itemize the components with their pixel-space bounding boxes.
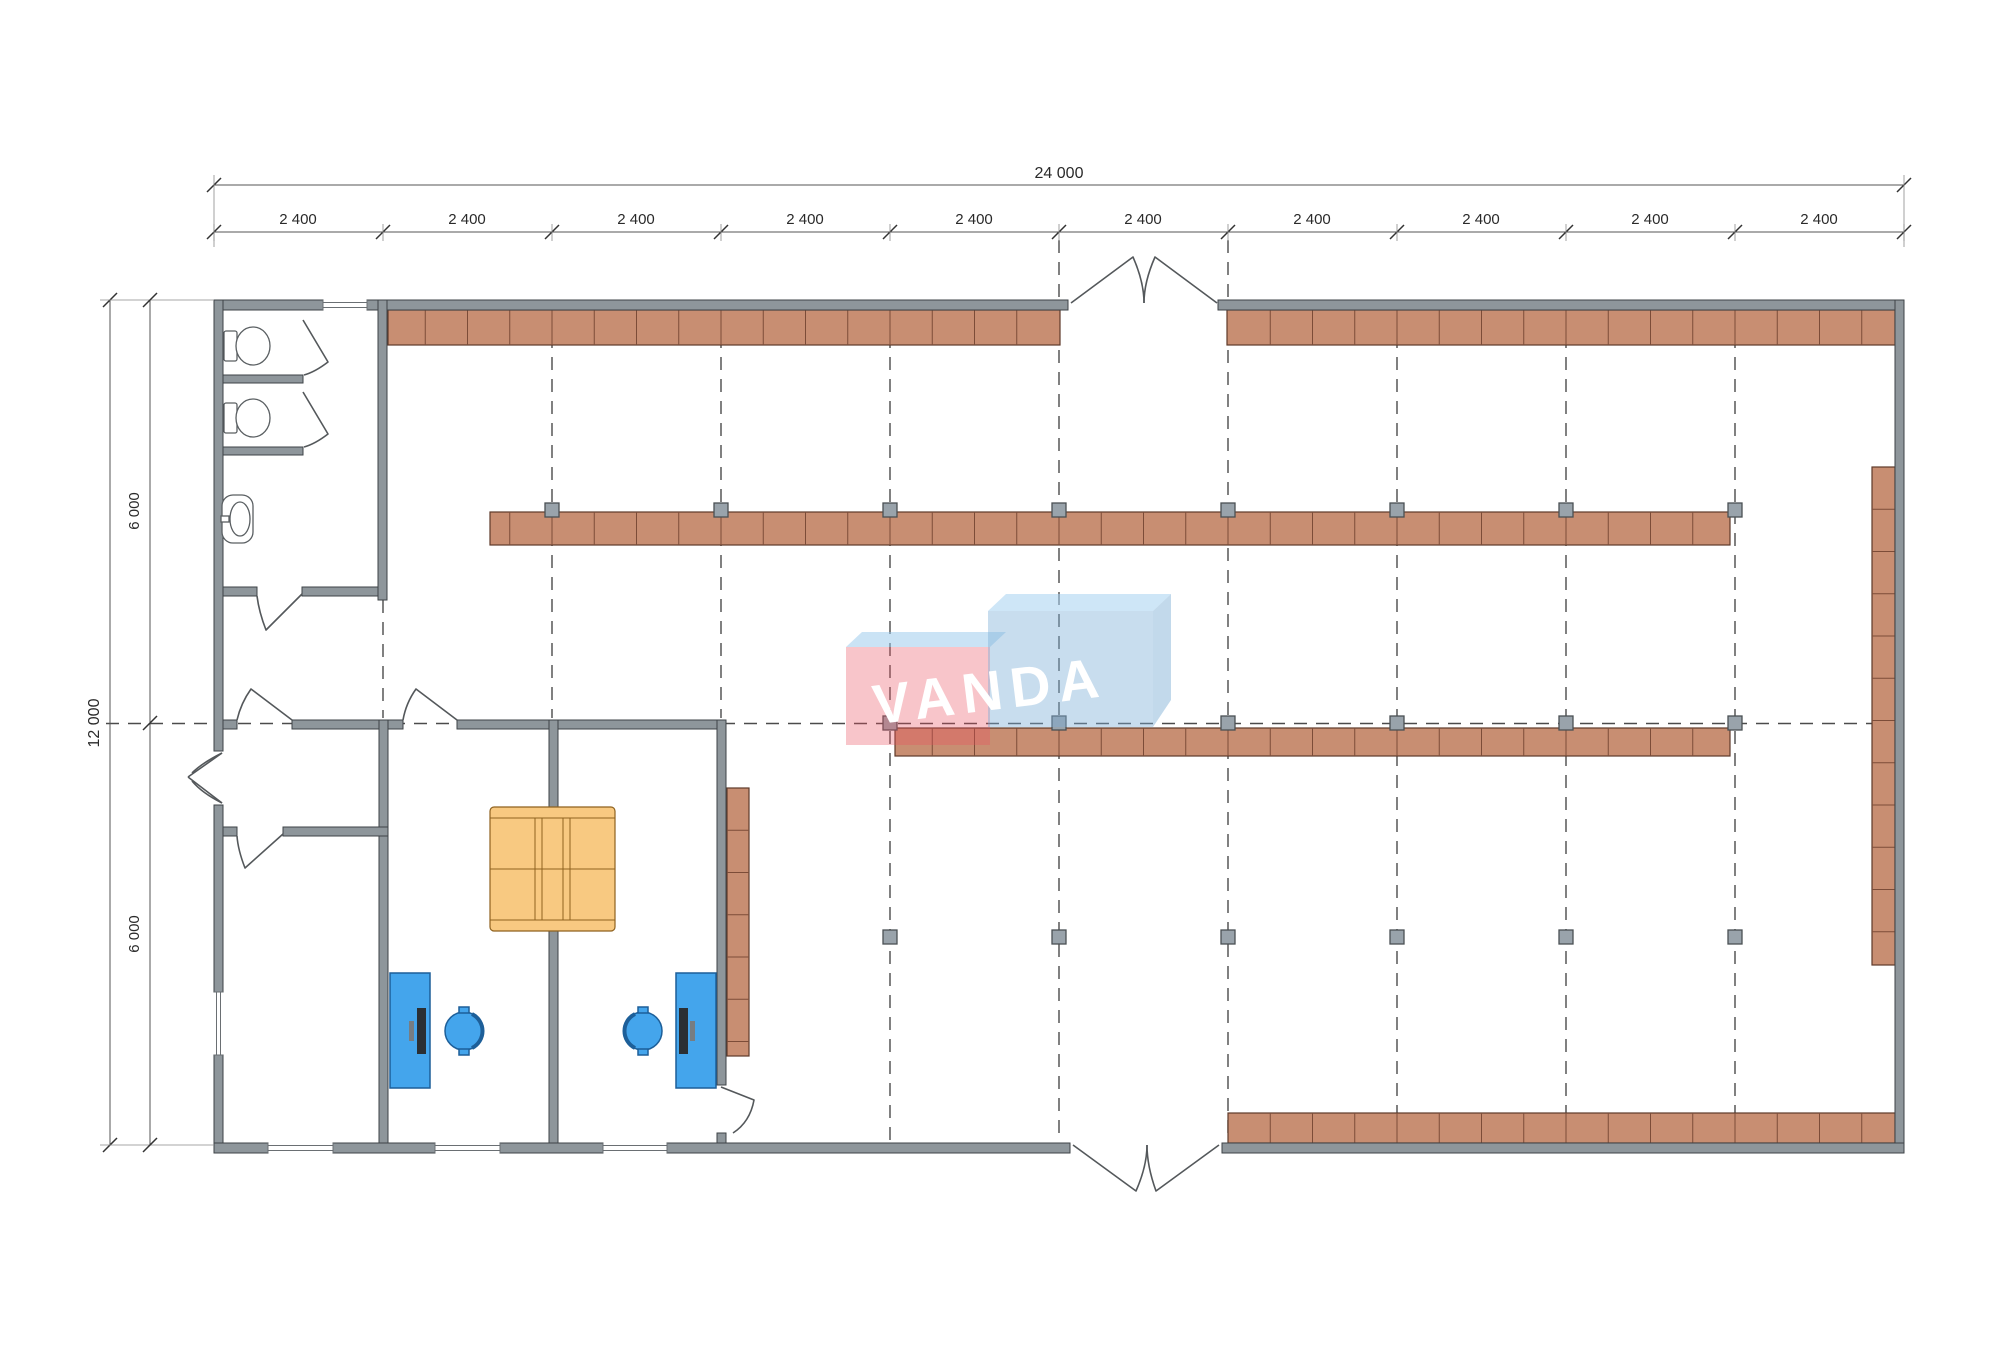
wall-segment xyxy=(378,300,387,600)
wall-segment xyxy=(1895,300,1904,1153)
dimension-label-bay: 2 400 xyxy=(617,211,655,228)
toilet-bowl xyxy=(236,327,270,365)
toilet-tank xyxy=(224,403,237,433)
sink-basin xyxy=(230,502,250,536)
computer-monitor xyxy=(679,1008,688,1054)
dimension-label-bay: 2 400 xyxy=(786,211,824,228)
structural-column xyxy=(1559,716,1573,730)
vanda-watermark: VANDA xyxy=(846,594,1171,745)
hall-door xyxy=(237,689,292,720)
wall-segment xyxy=(1222,1143,1904,1153)
wall-segment xyxy=(223,587,257,596)
wall-segment xyxy=(283,827,388,836)
shelf-unit xyxy=(1872,467,1895,965)
dimension-label-bay: 2 400 xyxy=(955,211,993,228)
computer-monitor xyxy=(417,1008,426,1054)
chair-armrest xyxy=(459,1049,469,1055)
wall-segment xyxy=(367,300,1068,310)
wc-stall-door xyxy=(303,392,328,447)
structural-column xyxy=(714,503,728,517)
watermark-pink-box-top xyxy=(846,632,1006,647)
structural-column xyxy=(545,503,559,517)
watermark-blue-box-top xyxy=(988,594,1171,611)
structural-column xyxy=(883,503,897,517)
structural-column xyxy=(1390,930,1404,944)
shelf-unit xyxy=(388,310,1060,345)
chair-armrest xyxy=(638,1007,648,1013)
dimension-label-bay: 2 400 xyxy=(1800,211,1838,228)
structural-column xyxy=(1052,930,1066,944)
wall-segment xyxy=(223,447,303,455)
wc-room-door xyxy=(257,594,302,630)
furniture xyxy=(221,327,716,1088)
sink-tap xyxy=(221,516,229,522)
floor-plan-drawing: VANDA24 0002 4002 4002 4002 4002 4002 40… xyxy=(0,0,2000,1358)
shelf-unit xyxy=(727,788,749,1056)
wall-segment xyxy=(457,720,726,729)
wall-segment xyxy=(379,720,388,1143)
main-entrance-south-door xyxy=(1147,1145,1219,1191)
structural-column xyxy=(1728,930,1742,944)
toilet-bowl xyxy=(236,399,270,437)
wc-stall-door xyxy=(303,320,328,375)
west-entrance-door xyxy=(188,753,222,803)
chair-armrest xyxy=(638,1049,648,1055)
structural-column xyxy=(883,930,897,944)
dimension-label-bay: 2 400 xyxy=(279,211,317,228)
keyboard xyxy=(690,1021,695,1041)
shelf-unit xyxy=(490,512,1730,545)
main-entrance-north-door xyxy=(1071,257,1144,303)
storage-room-door xyxy=(237,834,283,868)
toilet-tank xyxy=(224,331,237,361)
wall-segment xyxy=(1218,300,1904,310)
wall-segment xyxy=(500,1143,603,1153)
wall-segment xyxy=(214,1055,223,1153)
wall-segment xyxy=(667,1143,1070,1153)
west-entrance-door xyxy=(192,753,222,803)
structural-column xyxy=(1221,930,1235,944)
structural-column xyxy=(1728,503,1742,517)
wall-segment xyxy=(223,720,237,729)
chair-armrest xyxy=(459,1007,469,1013)
structural-column xyxy=(1559,930,1573,944)
dimension-label-bay: 2 400 xyxy=(1462,211,1500,228)
dimension-label-half-height: 6 000 xyxy=(126,492,143,530)
office1-door xyxy=(403,689,457,720)
structural-column xyxy=(1052,503,1066,517)
main-entrance-south-door xyxy=(1073,1145,1147,1191)
wall-segment xyxy=(333,1143,435,1153)
wall-segment xyxy=(223,827,237,836)
dimension-label-bay: 2 400 xyxy=(1631,211,1669,228)
main-entrance-north-door xyxy=(1144,257,1217,303)
dimension-label-bay: 2 400 xyxy=(448,211,486,228)
structural-column xyxy=(1728,716,1742,730)
structural-column xyxy=(1390,716,1404,730)
structural-column xyxy=(1221,716,1235,730)
watermark-blue-box-side xyxy=(1153,594,1171,727)
floor-plan-canvas: VANDA24 0002 4002 4002 4002 4002 4002 40… xyxy=(0,0,2000,1358)
wall-segment xyxy=(214,805,223,992)
office2-side-door xyxy=(721,1087,754,1133)
dimension-label-total-width: 24 000 xyxy=(1035,165,1084,182)
wall-segment xyxy=(214,1143,268,1153)
dimension-label-bay: 2 400 xyxy=(1293,211,1331,228)
wall-segment xyxy=(214,300,323,310)
wall-segment xyxy=(302,587,378,596)
shelf-unit xyxy=(1228,1113,1895,1143)
structural-column xyxy=(1221,503,1235,517)
structural-column xyxy=(1559,503,1573,517)
wall-segment xyxy=(717,720,726,1085)
structural-column xyxy=(1390,503,1404,517)
dimension-label-total-height: 12 000 xyxy=(86,698,103,747)
keyboard xyxy=(409,1021,414,1041)
dimension-label-bay: 2 400 xyxy=(1124,211,1162,228)
wall-segment xyxy=(717,1133,726,1143)
wall-segment xyxy=(223,375,303,383)
shelf-unit xyxy=(1227,310,1895,345)
dimension-label-half-height: 6 000 xyxy=(126,915,143,953)
